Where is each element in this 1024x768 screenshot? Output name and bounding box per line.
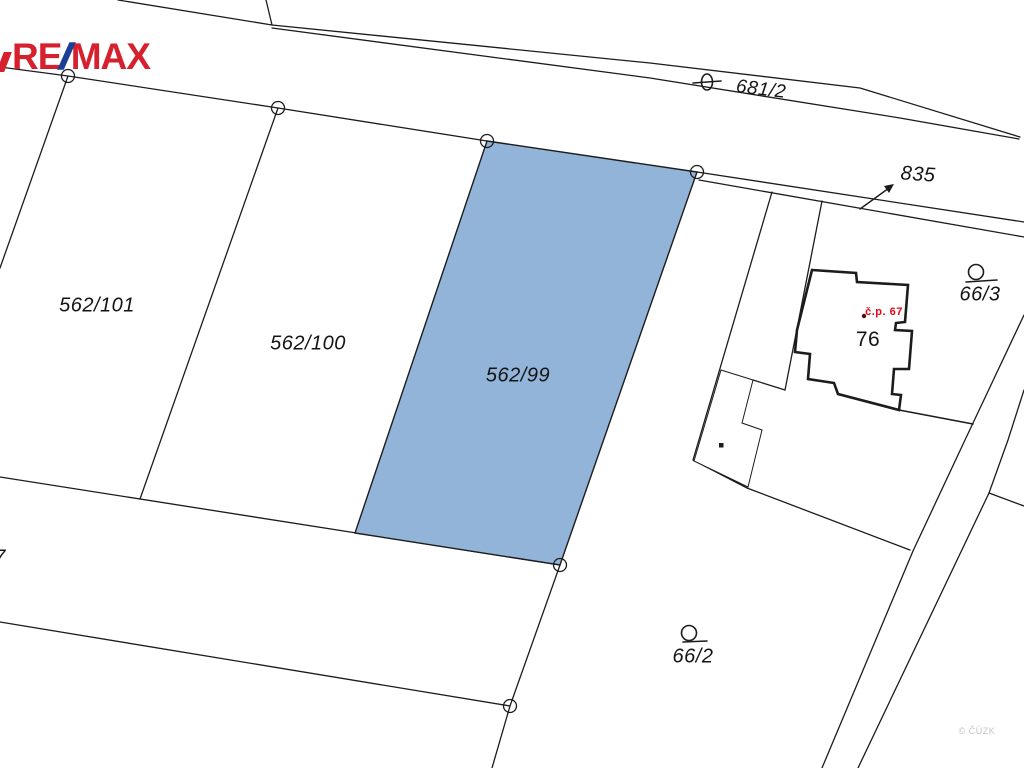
boundary-76-east xyxy=(899,410,973,424)
road-681-2-north-line xyxy=(272,25,1020,137)
house-number-label: č.p. 67 xyxy=(865,306,903,318)
boundary-segment-se-lower xyxy=(492,706,510,768)
remax-logo: RE/MAX xyxy=(12,38,150,75)
parcel-66-3-label: 66/3 xyxy=(960,284,1001,307)
boundary-line-topleft xyxy=(118,0,272,25)
cadastral-map-canvas: RE/MAX 562/101562/100562/99681/283566/36… xyxy=(0,0,1024,768)
parcel-835-arrow xyxy=(860,184,894,209)
parcel-562-100-label: 562/100 xyxy=(270,333,346,356)
garden-symbol-66-2 xyxy=(682,626,708,643)
parcel-562-99-label: 562/99 xyxy=(486,365,550,388)
parcel-562-99-highlight[interactable] xyxy=(355,141,697,565)
boundary-branch-east xyxy=(989,493,1024,506)
parcel-835-label: 835 xyxy=(900,162,936,187)
boundary-line-parcels-north xyxy=(0,67,487,141)
road-835-north-line xyxy=(697,172,1024,222)
building-wing-outline xyxy=(694,370,762,487)
parcel-562-101-label: 562/101 xyxy=(59,295,135,318)
boundary-562-101-100 xyxy=(140,108,278,499)
remax-logo-re: RE xyxy=(12,36,61,77)
building-76-outline xyxy=(795,270,912,410)
building-76-label: 76 xyxy=(856,328,880,352)
survey-point-square xyxy=(719,443,724,448)
path-corridor-east-line xyxy=(858,390,1024,768)
boundary-segment-se xyxy=(510,565,560,706)
road-681-2-south-line xyxy=(272,28,1019,139)
boundary-line-top-vertical xyxy=(266,0,272,25)
boundary-wing-top-extension xyxy=(753,380,785,390)
garden-symbol-66-3 xyxy=(966,265,997,283)
remax-logo-max: MAX xyxy=(71,36,150,77)
parcel-66-2-label: 66/2 xyxy=(673,646,714,669)
parcel-7-clipped-label: 7 xyxy=(0,547,6,570)
boundary-562-101-west xyxy=(0,76,68,268)
boundary-line-south-b xyxy=(0,622,510,706)
watermark-label: © ČÚZK xyxy=(959,726,996,736)
